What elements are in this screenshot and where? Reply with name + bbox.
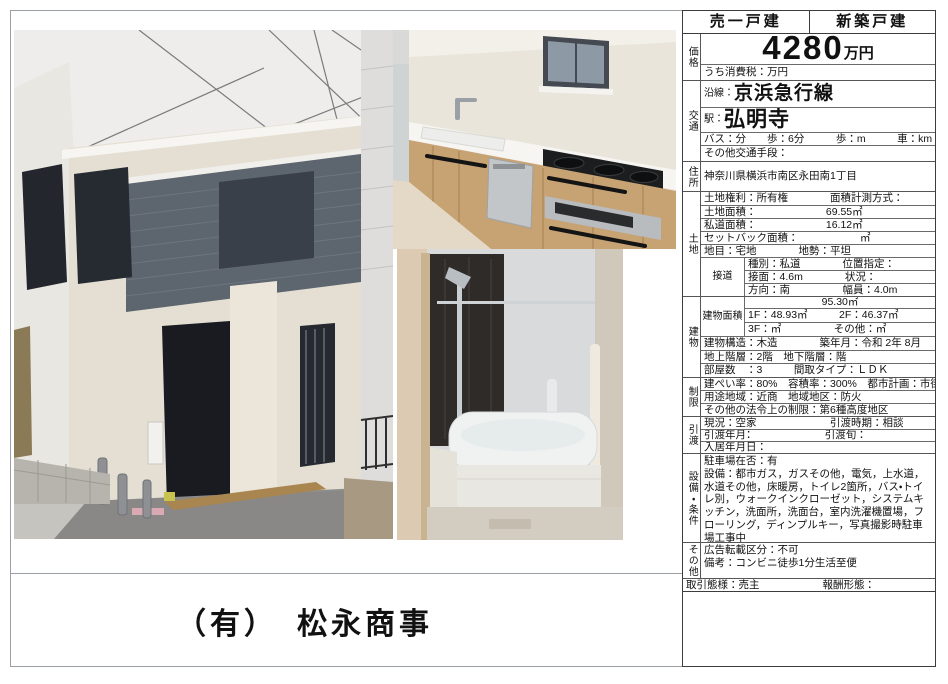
price-tax-row: うち消費税：万円 xyxy=(701,65,935,80)
land-area-value: 69.55㎡ xyxy=(757,206,933,218)
building-area-subsection: 建物面積 95.30㎡ 1F：48.93㎡ 2F：46.37㎡ 3F：㎡ その他… xyxy=(701,297,935,337)
private-road-key: 私道面積： xyxy=(704,219,757,231)
building-section: 建物 建物面積 95.30㎡ 1F：48.93㎡ 2F：46.37㎡ 3F：㎡ … xyxy=(683,297,935,378)
building-area-f3-row: 3F：㎡ その他：㎡ xyxy=(745,323,935,336)
property-spec-table: 売一戸建 新築戸建 価格 4280 万円 うち消費税：万円 交通 沿線： 京浜急… xyxy=(682,10,936,667)
address-row: 神奈川県横浜市南区永田南1丁目 xyxy=(701,162,935,191)
other-transport-row: その他交通手段： xyxy=(701,146,935,161)
address-section-label: 住所 xyxy=(683,162,701,191)
remarks-row: 備考：コンビニ徒歩1分生活至便 xyxy=(701,557,935,577)
land-section: 土地 土地権利：所有権 面積計測方式： 土地面積： 69.55㎡ 私道面積： 1… xyxy=(683,192,935,297)
road-contact-subsection: 接道 種別：私道 位置指定： 接面：4.6m 状況： 方向：南 幅員：4.0m xyxy=(701,258,935,296)
price-unit: 万円 xyxy=(844,45,874,63)
equipment-items-line: 設備：都市ガス，ガスその他，電気，上水道，水道その他，床暖房，トイレ2箇所，バス… xyxy=(704,468,932,542)
equipment-section-label: 設備・条件 xyxy=(683,454,701,542)
bus-walk-row: バス：分 歩：6分 歩：m 車：km xyxy=(701,133,935,146)
rooms-row: 部屋数 ：3 間取タイプ：ＬＤＫ xyxy=(701,364,935,377)
exterior-photo-illustration xyxy=(14,30,393,539)
setback-key: セットバック面積： xyxy=(704,232,799,244)
current-status-row: 現況：空家 引渡時期：相談 xyxy=(701,417,935,430)
bathroom-photo xyxy=(397,249,623,540)
bathroom-photo-illustration xyxy=(397,249,623,540)
building-area-f12-row: 1F：48.93㎡ 2F：46.37㎡ xyxy=(745,309,935,323)
move-in-row: 入居年月日： xyxy=(701,442,935,453)
handover-section: 引渡 現況：空家 引渡時期：相談 引渡年月： 引渡旬： 入居年月日： xyxy=(683,417,935,454)
transport-section: 交通 沿線： 京浜急行線 駅： 弘明寺 バス：分 歩：6分 歩：m 車：km そ… xyxy=(683,81,935,162)
road-contact-label: 接道 xyxy=(701,258,745,296)
building-section-label: 建物 xyxy=(683,297,701,377)
land-category-row: 地目：宅地 地勢：平坦 xyxy=(701,245,935,258)
tab-newly-built: 新築戸建 xyxy=(810,11,936,33)
coverage-ratio-row: 建ぺい率：80% 容積率：300% 都市計画：市街 xyxy=(701,378,935,391)
road-frontage-row: 接面：4.6m 状況： xyxy=(745,271,935,284)
handover-section-label: 引渡 xyxy=(683,417,701,453)
other-law-row: その他の法令上の制限：第6種高度地区 xyxy=(701,404,935,416)
land-section-label: 土地 xyxy=(683,192,701,296)
land-area-key: 土地面積： xyxy=(704,206,757,218)
kitchen-photo xyxy=(393,30,676,249)
exterior-house-photo xyxy=(14,30,393,539)
station-value: 弘明寺 xyxy=(724,108,790,132)
other-section: その他 広告転載区分：不可 備考：コンビニ徒歩1分生活至便 xyxy=(683,543,935,579)
price-row: 4280 万円 xyxy=(701,34,935,65)
equipment-text: 駐車場在否：有 設備：都市ガス，ガスその他，電気，上水道，水道その他，床暖房，ト… xyxy=(701,454,935,542)
zoning-row: 用途地域：近商 地域地区：防火 xyxy=(701,391,935,404)
restrictions-section-label: 制限 xyxy=(683,378,701,416)
handover-date-row: 引渡年月： 引渡旬： xyxy=(701,430,935,442)
company-box: （有） 松永商事 xyxy=(10,573,683,667)
listing-sheet: （有） 松永商事 売一戸建 新築戸建 価格 4280 万円 うち消費税：万円 交… xyxy=(0,0,948,684)
road-direction-row: 方向：南 幅員：4.0m xyxy=(745,284,935,296)
building-area-total-row: 95.30㎡ xyxy=(745,297,935,309)
parking-line: 駐車場在否：有 xyxy=(704,455,932,468)
address-section: 住所 神奈川県横浜市南区永田南1丁目 xyxy=(683,162,935,192)
tab-sale-detached: 売一戸建 xyxy=(683,11,810,33)
setback-row: セットバック面積： ㎡ xyxy=(701,232,935,245)
rail-line-value: 京浜急行線 xyxy=(734,83,834,105)
land-rights-row: 土地権利：所有権 面積計測方式： xyxy=(701,192,935,206)
road-type-row: 種別：私道 位置指定： xyxy=(745,258,935,271)
company-name: （有） 松永商事 xyxy=(176,599,433,643)
kitchen-photo-illustration xyxy=(393,30,676,249)
equipment-section: 設備・条件 駐車場在否：有 設備：都市ガス，ガスその他，電気，上水道，水道その他… xyxy=(683,454,935,543)
restrictions-section: 制限 建ぺい率：80% 容積率：300% 都市計画：市街 用途地域：近商 地域地… xyxy=(683,378,935,417)
land-area-row: 土地面積： 69.55㎡ xyxy=(701,206,935,219)
rail-line-row: 沿線： 京浜急行線 xyxy=(701,81,935,108)
private-road-value: 16.12㎡ xyxy=(757,219,933,231)
ad-repost-row: 広告転載区分：不可 xyxy=(701,543,935,557)
price-amount: 4280 xyxy=(762,34,843,63)
empty-notes-box xyxy=(683,592,935,666)
building-area-label: 建物面積 xyxy=(701,297,745,336)
structure-row: 建物構造：木造 築年月：令和 2年 8月 xyxy=(701,337,935,351)
transport-section-label: 交通 xyxy=(683,81,701,161)
floors-row: 地上階層：2階 地下階層：階 xyxy=(701,351,935,364)
deal-type-row: 取引態様：売主 報酬形態： xyxy=(683,579,935,592)
price-section: 価格 4280 万円 うち消費税：万円 xyxy=(683,34,935,81)
private-road-row: 私道面積： 16.12㎡ xyxy=(701,219,935,232)
price-section-label: 価格 xyxy=(683,34,701,80)
station-row: 駅： 弘明寺 xyxy=(701,108,935,133)
station-key: 駅： xyxy=(704,114,724,126)
rail-line-key: 沿線： xyxy=(704,88,734,100)
setback-value: ㎡ xyxy=(799,232,933,244)
listing-type-header: 売一戸建 新築戸建 xyxy=(683,11,935,34)
other-section-label: その他 xyxy=(683,543,701,578)
